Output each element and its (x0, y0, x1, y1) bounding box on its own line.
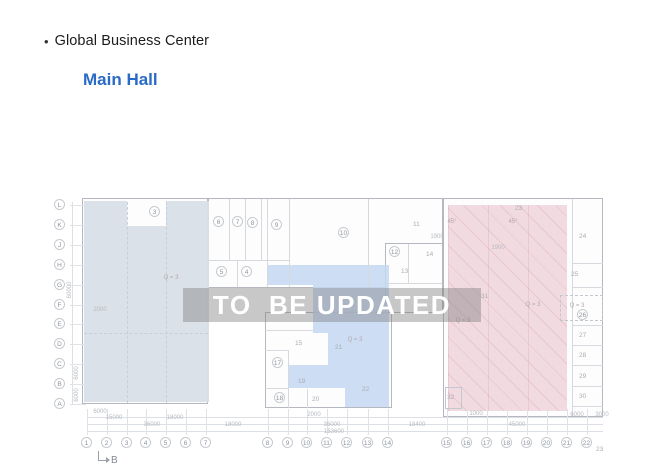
dimension-label: 18400 (409, 422, 426, 428)
grid-tick (70, 225, 86, 226)
wall (265, 388, 288, 389)
wall (572, 365, 603, 366)
grid-tick (166, 409, 167, 435)
wall (572, 263, 603, 264)
dim-line (87, 431, 603, 432)
wall (267, 199, 268, 287)
dimension-label: 18000 (225, 422, 242, 428)
slide: • Global Business Center Main Hall (0, 0, 660, 440)
grid-tick (87, 409, 88, 435)
dim-line (72, 202, 73, 404)
wall (572, 386, 603, 387)
grid-tick (447, 409, 448, 435)
wall (368, 199, 369, 287)
grid-tick (347, 409, 348, 435)
grid-tick (206, 409, 207, 435)
grid-tick (70, 364, 86, 365)
page-title: Global Business Center (55, 33, 210, 49)
dimension-label: 18000 (167, 415, 184, 421)
dimension-label: 60000 (67, 282, 73, 299)
wall (572, 345, 603, 346)
dimension-label: 1900 (430, 234, 443, 240)
grid-tick (70, 404, 86, 405)
grid-tick (368, 409, 369, 435)
dimension-label: 6000 (74, 388, 80, 401)
dimension-label: 2000 (307, 412, 320, 418)
wall (237, 260, 238, 287)
grid-tick (70, 245, 86, 246)
grid-tick (268, 409, 269, 435)
wall (307, 389, 308, 408)
plan-annotation: Q = 3 (570, 303, 585, 309)
grid-tick (70, 305, 86, 306)
grid-tick (288, 409, 289, 435)
wall (261, 199, 262, 260)
floorplan: L K J H G F E D (0, 95, 660, 395)
section-marker-letter: B (111, 455, 118, 466)
grid-tick (70, 265, 86, 266)
grid-tick (547, 409, 548, 435)
dimension-label: 2000 (93, 307, 106, 313)
wall (288, 350, 289, 408)
grid-tick (70, 344, 86, 345)
dimension-label: 1000 (469, 411, 482, 417)
grid-tick (127, 409, 128, 435)
plan-annotation: 45° (508, 219, 517, 225)
dimension-label: 1900 (491, 245, 504, 251)
grid-tick (467, 409, 468, 435)
grid-tick (388, 409, 389, 435)
dimension-label: 15000 (106, 415, 123, 421)
grid-tick (107, 409, 108, 435)
grid-tick (567, 409, 568, 435)
dimension-label: 153600 (324, 429, 344, 435)
wall (265, 330, 313, 331)
wall (265, 350, 288, 351)
wall (572, 325, 603, 326)
wall (572, 287, 603, 288)
dimension-label: 36000 (324, 422, 341, 428)
bullet-icon: • (44, 35, 49, 48)
grid-tick (587, 409, 588, 435)
grid-tick (70, 205, 86, 206)
wall (386, 283, 442, 284)
plan-annotation: Q = 3 (526, 302, 541, 308)
wall (289, 199, 290, 287)
dim-line (87, 417, 603, 418)
grid-line (127, 202, 129, 403)
section-arrow-icon (98, 451, 108, 461)
plan-annotation: 45° (447, 219, 456, 225)
dimension-label: 6000 (74, 366, 80, 379)
plan-annotation: Q = 3 (348, 337, 363, 343)
grid-tick (527, 409, 528, 435)
wall (408, 244, 409, 284)
dimension-label: 3000 (595, 412, 608, 418)
wall (209, 260, 289, 261)
dimension-label: 6000 (570, 412, 583, 418)
grid-tick (186, 409, 187, 435)
grid-tick (70, 384, 86, 385)
dimension-label: 36000 (144, 422, 161, 428)
wall (572, 406, 603, 407)
wall (229, 199, 230, 260)
grid-tick (70, 324, 86, 325)
plan-annotation: Q = 3 (164, 275, 179, 281)
slide-title-row: • Global Business Center (44, 33, 209, 49)
grid-line (84, 333, 208, 335)
watermark-text: TO BE UPDATED (213, 290, 451, 321)
dimension-label: 45000 (509, 422, 526, 428)
watermark-banner: TO BE UPDATED (183, 288, 481, 322)
wall (245, 199, 246, 260)
grid-tick (487, 409, 488, 435)
hall-subtitle: Main Hall (83, 70, 158, 90)
grid-line (166, 202, 168, 403)
